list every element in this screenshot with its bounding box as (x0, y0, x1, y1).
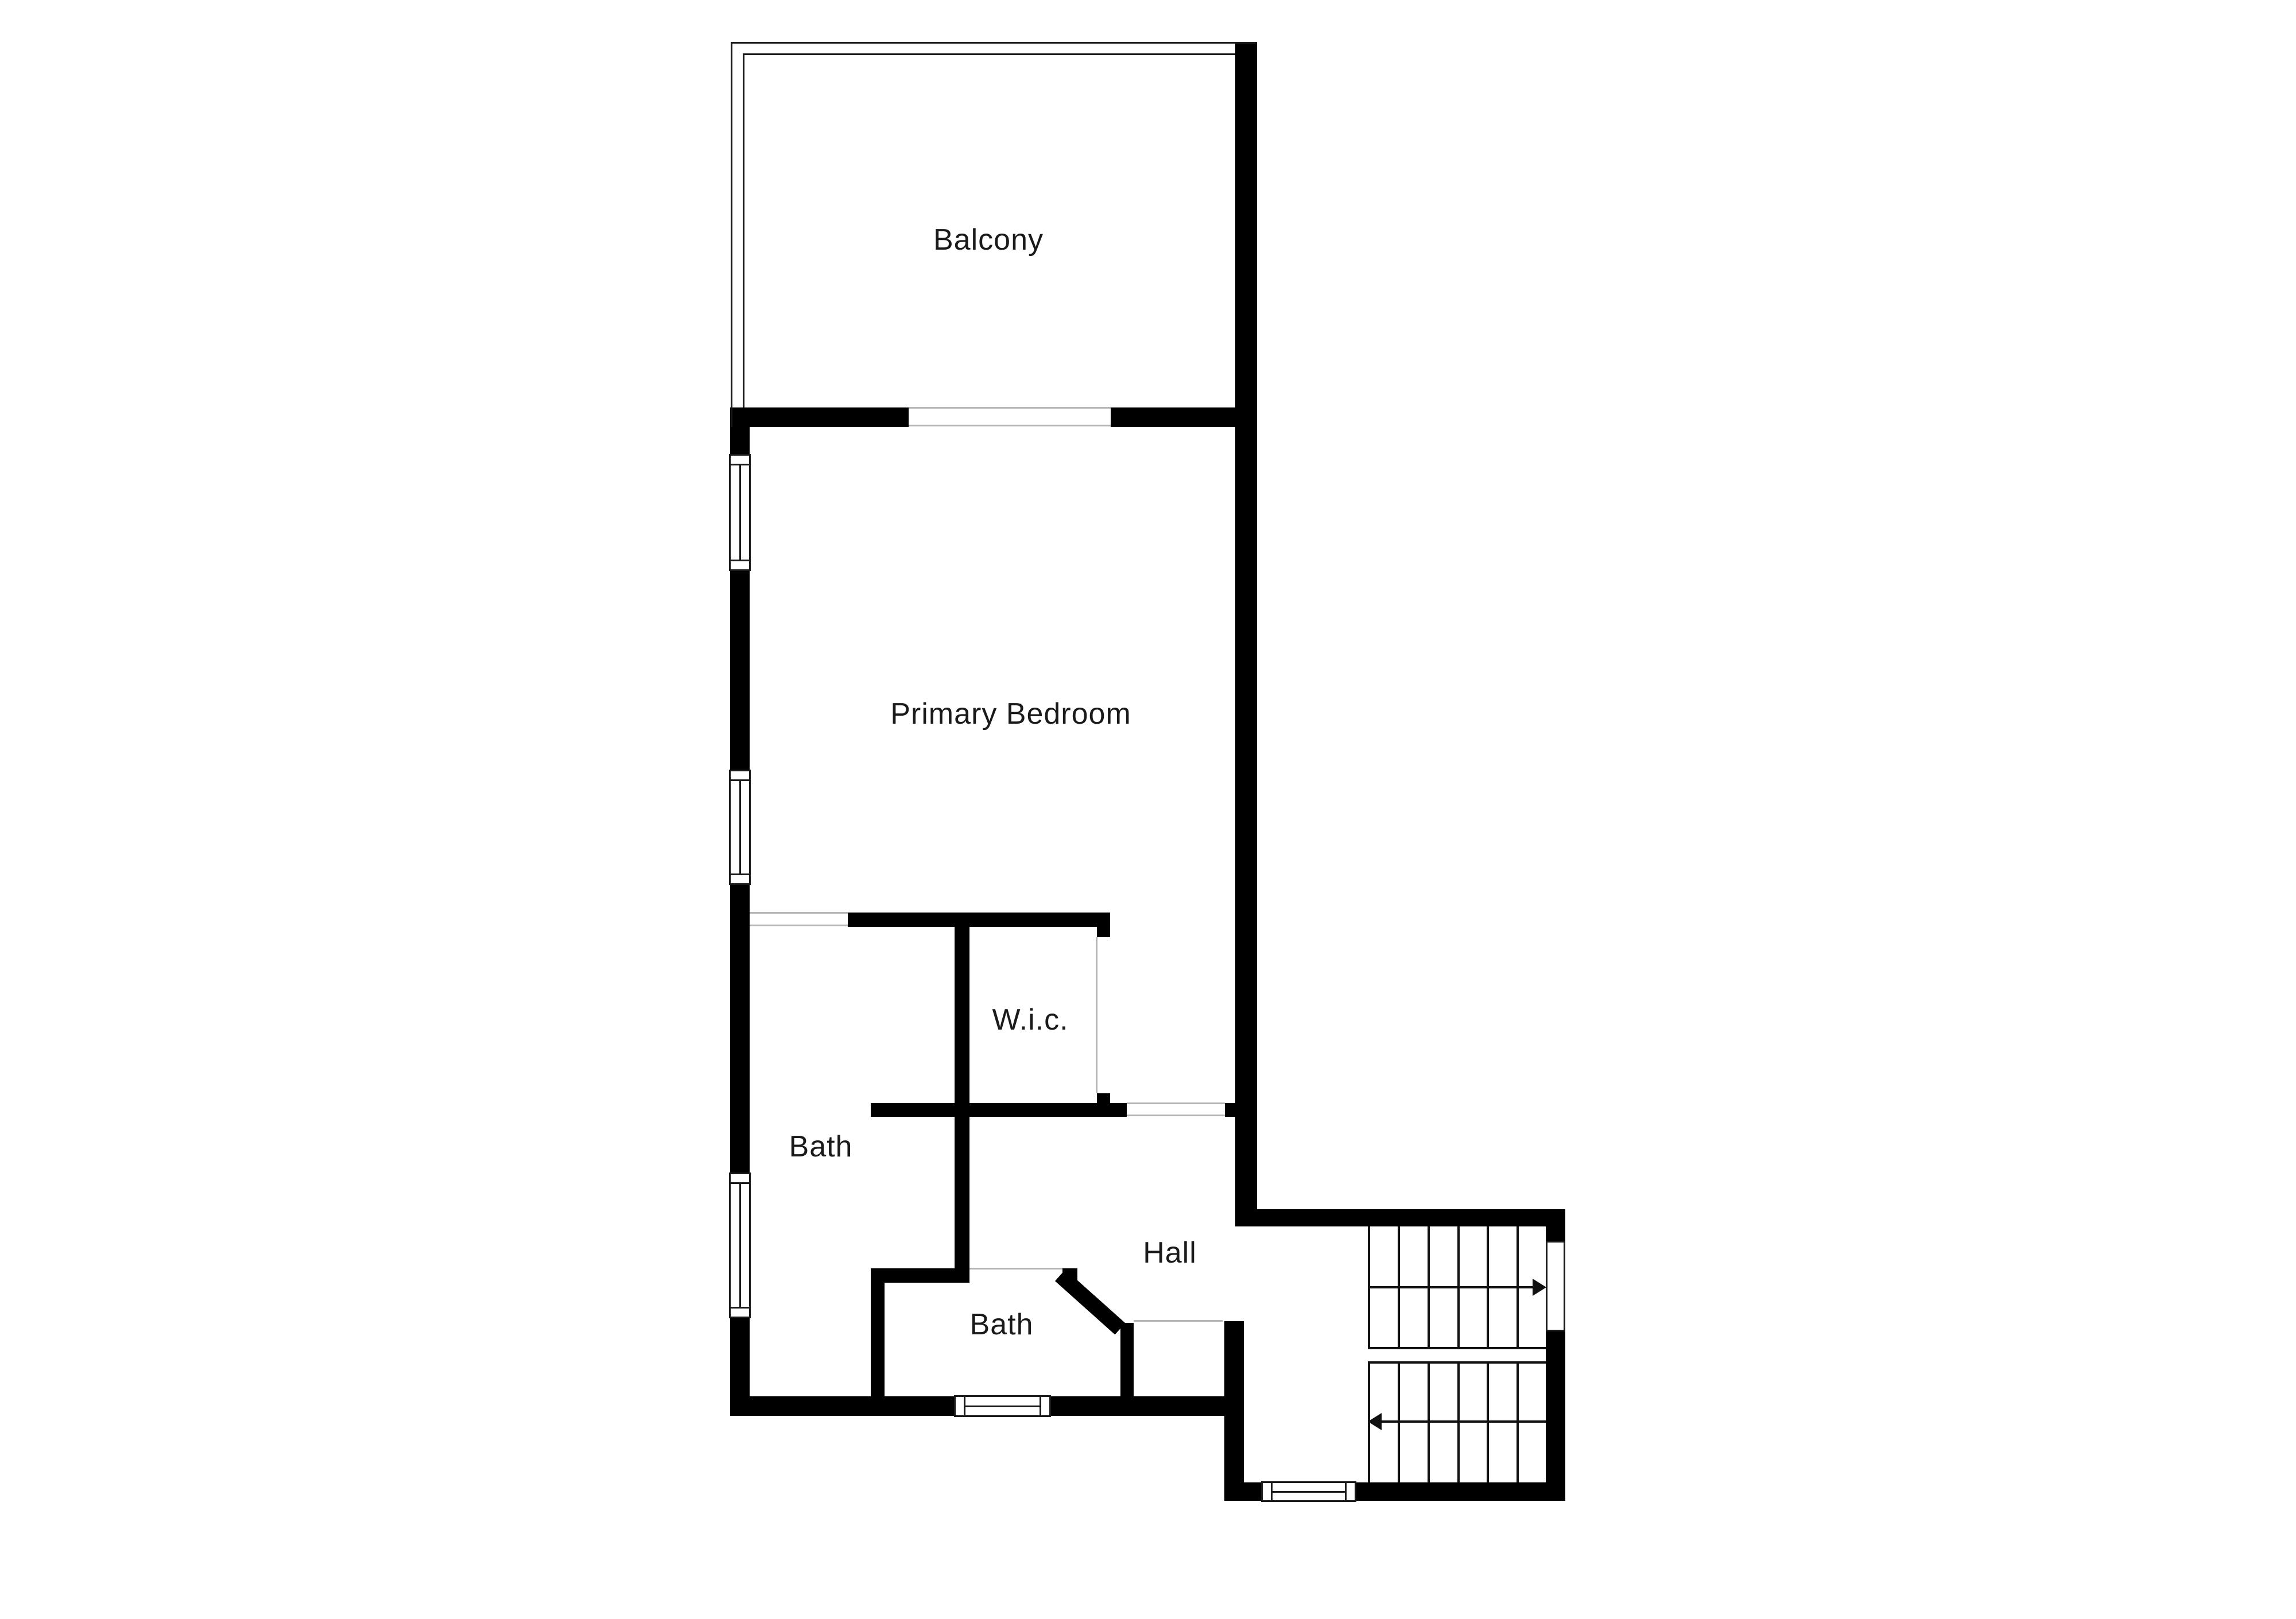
bath2-right-wall (1120, 1323, 1134, 1396)
wic-west-wall (955, 913, 969, 1283)
hall-threshold-line (1134, 1320, 1223, 1322)
bedroom-window-lower-glass-line (739, 779, 741, 875)
wic-east-jamb-top (1097, 925, 1110, 937)
bath2-left-wall (871, 1268, 885, 1396)
floorplan: BalconyPrimary BedroomW.i.c.BathHallBath (0, 0, 2296, 1619)
bath2-top-wall (871, 1268, 969, 1283)
balcony-door-edge-top (909, 407, 1111, 409)
bath-window-glass-line (739, 1182, 741, 1309)
balcony-bottom-wall-left (730, 407, 909, 427)
stair-landing-line-1 (1368, 1347, 1546, 1349)
balcony-railing-outer-top (731, 42, 1257, 44)
entry-window (1261, 1481, 1356, 1502)
hall-north-wall (871, 1103, 1127, 1117)
room-label-balcony: Balcony (933, 223, 1044, 257)
balcony-door-edge-bottom (909, 425, 1111, 426)
stair-landing-line-2 (1368, 1361, 1546, 1364)
stair-arrow-up-shaft (1368, 1286, 1534, 1288)
hall-opening-edge-top (1127, 1102, 1225, 1104)
bath-door-edge-top (750, 912, 848, 914)
stair-arrow-down-shaft (1382, 1420, 1546, 1423)
bath2-window (954, 1395, 1051, 1417)
bath2-diagonal-wall (1055, 1269, 1125, 1334)
stair-bottom-wall-right (1356, 1482, 1565, 1501)
stair-arrow-up-head (1533, 1279, 1546, 1296)
balcony-railing-outer-left (731, 42, 732, 427)
stair-arrow-down-head (1368, 1413, 1382, 1430)
room-label-hall: Hall (1143, 1236, 1197, 1270)
left-wall-mid-2 (730, 885, 750, 1172)
balcony-railing-inner-top (743, 53, 1235, 55)
left-wall-mid-1 (730, 571, 750, 770)
bedroom-south-wall (848, 913, 1110, 927)
stair-top-wall (1235, 1209, 1565, 1226)
bath2-window-glass-line (964, 1406, 1041, 1407)
bath-window (729, 1172, 751, 1318)
bedroom-window-upper-glass-line (739, 464, 741, 561)
unit-bottom-wall-left (730, 1396, 954, 1416)
hall-opening-edge-bottom (1127, 1115, 1225, 1116)
bath2-door-edge (969, 1268, 1062, 1269)
stair-right-wall-lower (1546, 1331, 1565, 1501)
wic-doorway-edge (1096, 937, 1097, 1093)
bedroom-window-upper (729, 454, 751, 571)
bath-door-edge-bottom (750, 925, 848, 926)
stair-bottom-wall-left (1224, 1482, 1261, 1501)
unit-bottom-wall-right (1051, 1396, 1244, 1416)
stair-landing-opening (1546, 1241, 1565, 1331)
entry-window-glass-line (1271, 1491, 1347, 1493)
stair-left-wall (1224, 1321, 1244, 1482)
room-label-bath-lower: Bath (970, 1307, 1034, 1342)
stair-right-wall-upper (1546, 1209, 1565, 1241)
balcony-railing-inner-left (743, 53, 744, 407)
room-label-bath-upper: Bath (789, 1129, 853, 1164)
bedroom-window-lower (729, 770, 751, 885)
room-label-primary-bedroom: Primary Bedroom (890, 697, 1131, 731)
hall-north-jamb (1225, 1103, 1235, 1117)
right-wall (1235, 42, 1257, 1226)
room-label-wic: W.i.c. (992, 1003, 1068, 1037)
balcony-bottom-wall-right (1111, 407, 1257, 427)
